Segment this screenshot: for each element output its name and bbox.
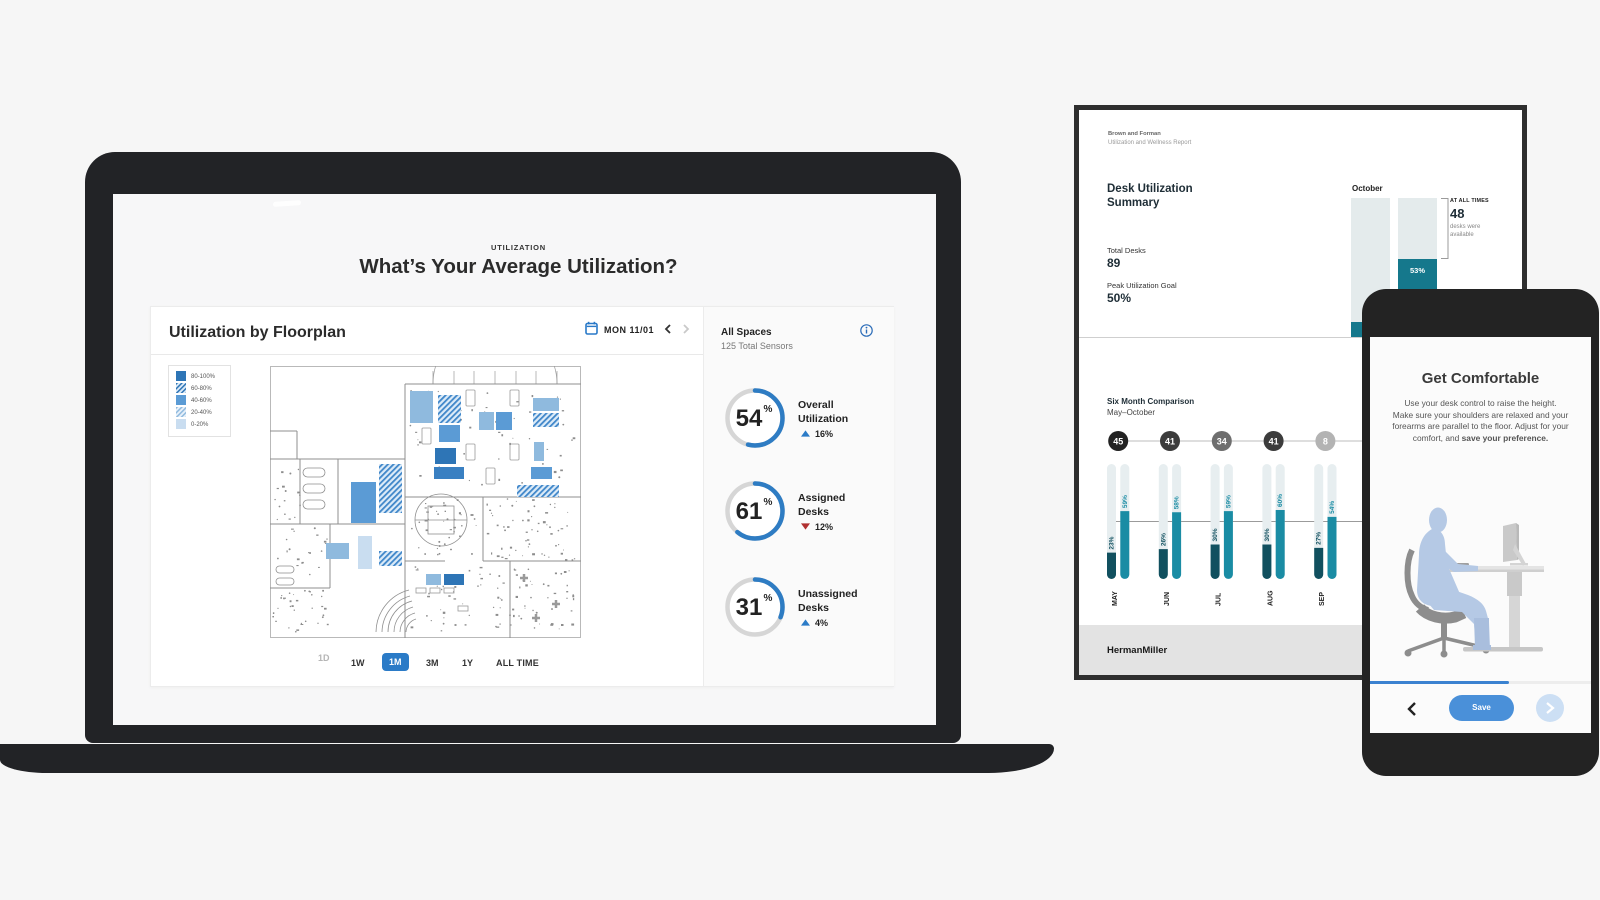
svg-text:40-60%: 40-60%: [191, 398, 212, 404]
svg-text:41: 41: [1269, 437, 1279, 447]
svg-text:JUL: JUL: [1216, 592, 1223, 606]
svg-text:80-100%: 80-100%: [191, 374, 216, 380]
svg-text:58%: 58%: [1174, 496, 1181, 509]
svg-text:54: 54: [735, 405, 762, 432]
svg-text:0-20%: 0-20%: [191, 422, 209, 428]
svg-text:SEP: SEP: [1319, 592, 1326, 606]
svg-text:MAY: MAY: [1112, 591, 1119, 606]
svg-text:%: %: [763, 404, 772, 415]
svg-text:20-40%: 20-40%: [191, 410, 212, 416]
svg-text:54%: 54%: [1329, 501, 1336, 514]
svg-text:27%: 27%: [1316, 532, 1323, 545]
svg-text:45: 45: [1113, 437, 1123, 447]
svg-text:AUG: AUG: [1267, 590, 1274, 606]
svg-text:26%: 26%: [1160, 533, 1167, 546]
svg-text:59%: 59%: [1122, 495, 1129, 508]
svg-text:61: 61: [735, 498, 762, 525]
svg-text:JUN: JUN: [1164, 592, 1171, 606]
svg-text:%: %: [763, 593, 772, 604]
svg-text:31: 31: [735, 594, 762, 621]
svg-text:23%: 23%: [1109, 536, 1116, 549]
svg-text:60-80%: 60-80%: [191, 386, 212, 392]
svg-text:59%: 59%: [1225, 495, 1232, 508]
svg-text:34: 34: [1217, 437, 1227, 447]
svg-text:30%: 30%: [1212, 528, 1219, 541]
svg-text:60%: 60%: [1277, 494, 1284, 507]
svg-text:%: %: [763, 497, 772, 508]
svg-text:41: 41: [1165, 437, 1175, 447]
svg-text:30%: 30%: [1264, 528, 1271, 541]
svg-text:8: 8: [1323, 437, 1328, 447]
